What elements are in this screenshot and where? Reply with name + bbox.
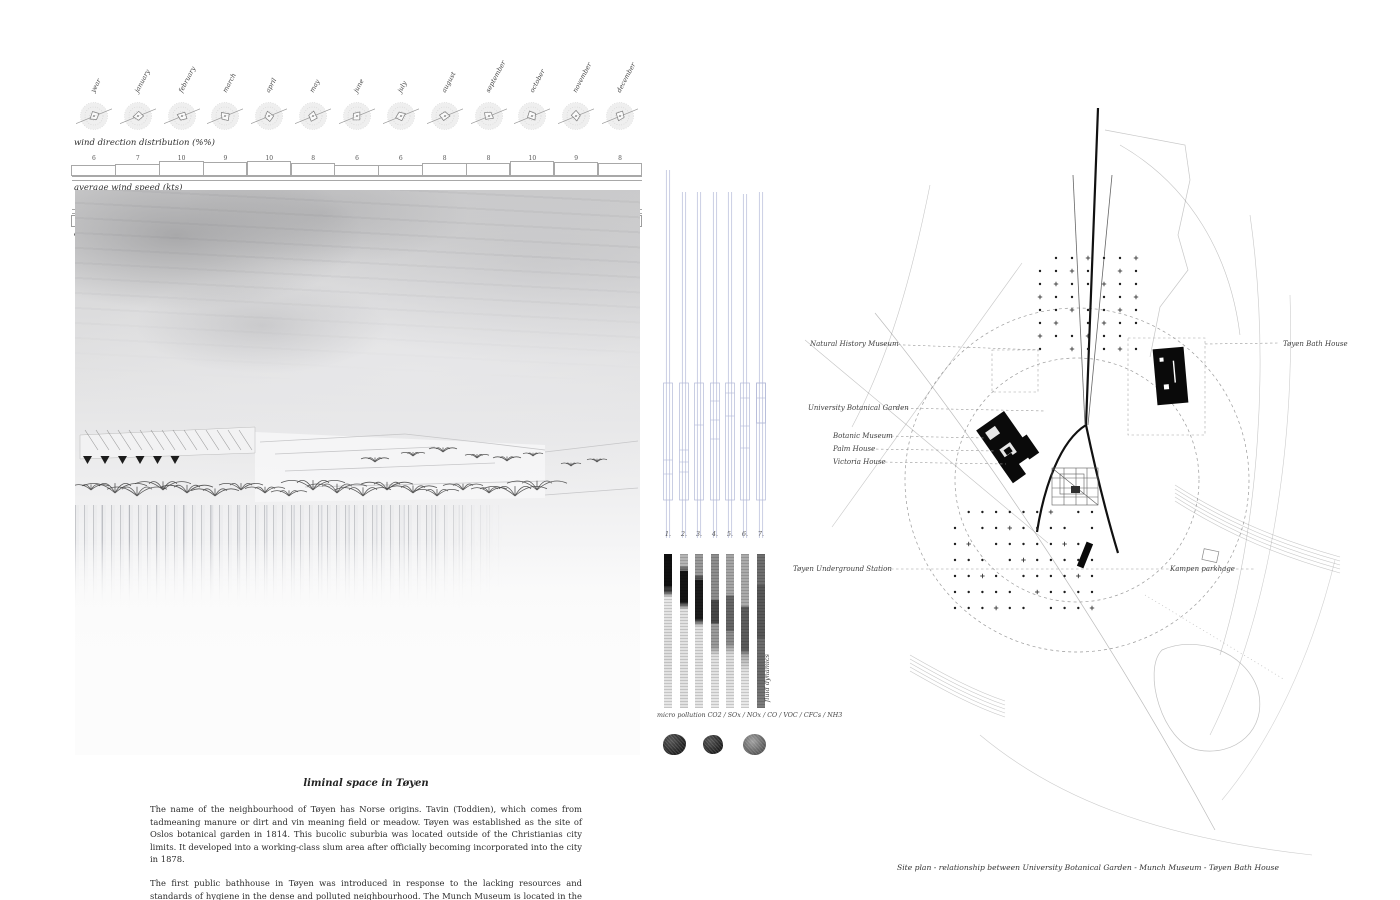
tree-dot — [1050, 575, 1052, 577]
tree-dot — [1119, 296, 1121, 298]
sample-number: 1. — [665, 530, 671, 538]
month-label: november — [571, 61, 594, 94]
tree-dot — [1009, 511, 1011, 513]
contour-line — [1154, 644, 1260, 751]
tree-dot — [954, 607, 956, 609]
tree-dot — [1071, 296, 1073, 298]
month-label: year — [89, 77, 103, 94]
tree-dot — [954, 543, 956, 545]
tree-dot — [1103, 335, 1105, 337]
label-kampen-parkhage: Kampen parkhage — [1169, 565, 1235, 573]
wind-rose-icon — [76, 98, 112, 134]
rail-track — [1175, 485, 1340, 557]
rose-center — [137, 115, 139, 117]
tree-dot — [1071, 283, 1073, 285]
rose-center — [400, 115, 402, 117]
tree-dot — [1063, 591, 1065, 593]
contour-line — [1210, 295, 1291, 735]
fluid-dynamics-label: fluid dynamics — [763, 626, 771, 702]
tree-dot — [1039, 283, 1041, 285]
tree-dot — [1119, 322, 1121, 324]
tree-dot — [995, 591, 997, 593]
pollution-rock-3 — [743, 734, 766, 755]
wind-speed-value: 8 — [423, 155, 467, 163]
munch-museum-building — [1153, 347, 1189, 405]
roof-vent-triangle — [101, 456, 110, 464]
tree-dot — [995, 527, 997, 529]
month-label: may — [308, 78, 322, 94]
tree-dot — [981, 607, 983, 609]
contour-line — [1220, 215, 1260, 655]
wind-rose-cell — [379, 98, 423, 134]
wind-rose-icon — [514, 98, 550, 134]
tree-dot — [1039, 309, 1041, 311]
tree-dot — [995, 511, 997, 513]
wind-rose-icon — [164, 98, 200, 134]
rail-track — [910, 671, 1005, 717]
wind-speed-bar — [510, 161, 554, 176]
month-label: december — [615, 61, 637, 94]
tube-vessel — [757, 383, 766, 500]
sample-number: 7. — [758, 530, 764, 538]
month-cell: may — [291, 42, 335, 96]
tree-dot — [1077, 591, 1079, 593]
tree-dot — [981, 527, 983, 529]
tree-dot — [1119, 257, 1121, 259]
wind-rose-icon — [558, 98, 594, 134]
tree-dot — [1077, 543, 1079, 545]
palm-frond — [215, 489, 239, 496]
tree-dot — [1036, 559, 1038, 561]
tree-dot — [1119, 335, 1121, 337]
pollution-samples-panel: 1.2.3.4.5.6.7. fluid dynamics micro poll… — [655, 158, 795, 762]
dashed-site-box — [992, 350, 1038, 392]
rose-center — [575, 115, 577, 117]
contour-line — [1120, 145, 1240, 335]
tree-dot — [954, 591, 956, 593]
wind-speed-value: 8 — [291, 155, 335, 163]
wind-speed-bar — [71, 165, 115, 176]
tree-grid-upper — [1038, 256, 1138, 351]
contour-line — [832, 263, 1022, 527]
value-cell: 8 — [467, 155, 511, 163]
month-cell: july — [379, 42, 423, 96]
tree-dot — [968, 559, 970, 561]
ticked-rail-line — [1145, 595, 1285, 680]
greenhouse-render-image — [75, 190, 640, 755]
sample-number: 3. — [696, 530, 702, 538]
parking-square — [1202, 549, 1219, 563]
roof-block — [80, 427, 255, 459]
tree-dot — [1036, 511, 1038, 513]
month-cell: march — [204, 42, 248, 96]
tree-dot — [1036, 575, 1038, 577]
wind-rose-cell — [554, 98, 598, 134]
tree-dot — [1103, 309, 1105, 311]
rose-center — [356, 115, 358, 117]
value-cell: 8 — [291, 155, 335, 163]
tree-dot — [1135, 283, 1137, 285]
tree-dot — [968, 607, 970, 609]
roof-vent-triangle — [171, 456, 180, 464]
tree-dot — [1036, 527, 1038, 529]
label-university-botanical-garden: University Botanical Garden — [808, 404, 909, 412]
tree-dot — [1009, 559, 1011, 561]
tube-vessel — [726, 383, 735, 500]
wind-rose-icon — [120, 98, 156, 134]
wind-speed-bar — [247, 161, 291, 176]
tree-dot — [968, 511, 970, 513]
wind-rose-cell — [247, 98, 291, 134]
tree-dot — [1135, 348, 1137, 350]
month-cell: december — [598, 42, 642, 96]
tree-dot — [1063, 527, 1065, 529]
month-cell: january — [116, 42, 160, 96]
tree-dot — [1022, 527, 1024, 529]
month-label: february — [177, 65, 197, 94]
tree-dot — [1050, 591, 1052, 593]
tree-dot — [954, 575, 956, 577]
label-natural-history-museum: Natural History Museum — [809, 340, 899, 348]
month-label: january — [133, 68, 152, 94]
wind-speed-value: 8 — [598, 155, 642, 163]
label-toyen-underground-station: Tøyen Underground Station — [793, 565, 892, 573]
rose-center — [312, 115, 314, 117]
rail-track — [910, 663, 1005, 709]
tree-dot — [1119, 283, 1121, 285]
road-branch-left — [1037, 425, 1086, 532]
tree-dot — [1135, 322, 1137, 324]
tree-dot — [1071, 335, 1073, 337]
wind-rose-cell — [423, 98, 467, 134]
tree-dot — [1050, 543, 1052, 545]
wind-rose-cell — [467, 98, 511, 134]
presentation-board: yearjanuaryfebruarymarchaprilmayjunejuly… — [0, 0, 1400, 900]
tree-dot — [1009, 607, 1011, 609]
tree-dot — [1063, 559, 1065, 561]
wind-speed-bar — [115, 164, 159, 176]
wind-speed-bar — [159, 161, 203, 176]
wind-speed-value: 7 — [116, 155, 160, 163]
tree-dot — [1135, 270, 1137, 272]
tree-dot — [1036, 543, 1038, 545]
rose-center — [225, 115, 227, 117]
tree-dot — [1087, 309, 1089, 311]
tree-dot — [981, 511, 983, 513]
tree-dot — [1039, 322, 1041, 324]
tree-dot — [1091, 527, 1093, 529]
tree-dot — [954, 559, 956, 561]
essay-block: liminal space in Tøyen The name of the n… — [150, 778, 582, 900]
month-cell: september — [467, 42, 511, 96]
wind-rose-icon — [251, 98, 287, 134]
month-label: september — [484, 59, 508, 94]
wind-rose-cell — [598, 98, 642, 134]
tree-dot — [1091, 511, 1093, 513]
tree-grid-lower — [954, 510, 1094, 610]
palm-plant — [587, 459, 607, 462]
tree-dot — [1103, 257, 1105, 259]
tree-dot — [1009, 543, 1011, 545]
tree-dot — [1071, 257, 1073, 259]
tree-dot — [1055, 270, 1057, 272]
tree-dot — [1009, 591, 1011, 593]
wind-rose-cell — [204, 98, 248, 134]
month-label: august — [440, 71, 458, 94]
sample-strip — [726, 554, 735, 708]
sample-number: 4. — [712, 530, 718, 538]
tree-dot — [1055, 257, 1057, 259]
tree-dot — [954, 527, 956, 529]
wind-rose-cell — [291, 98, 335, 134]
wind-speed-bar — [334, 165, 378, 176]
wind-speed-bar — [291, 163, 335, 176]
tree-dot — [1055, 335, 1057, 337]
tree-dot — [995, 575, 997, 577]
tree-dot — [1091, 559, 1093, 561]
month-cell: august — [423, 42, 467, 96]
wind-speed-bar — [422, 163, 466, 176]
wind-rose-icon — [427, 98, 463, 134]
wind-speed-bar — [554, 162, 598, 176]
value-cell: 7 — [116, 155, 160, 163]
wind-rose-cell — [116, 98, 160, 134]
tree-dot — [1087, 270, 1089, 272]
tree-dot — [1091, 591, 1093, 593]
tree-dot — [1022, 511, 1024, 513]
month-cell: november — [554, 42, 598, 96]
palm-frond — [191, 489, 215, 496]
sample-strip — [711, 554, 720, 708]
tree-dot — [1055, 309, 1057, 311]
wind-speed-bars — [72, 163, 642, 176]
tube-vessel — [711, 383, 720, 500]
label-victoria-house: Victoria House — [833, 458, 886, 466]
contour-line — [980, 735, 1312, 855]
terrace-edge — [545, 441, 638, 452]
sample-strip — [664, 554, 673, 708]
tree-dot — [1022, 575, 1024, 577]
tube-vessel — [664, 383, 673, 500]
main-road — [1086, 108, 1098, 425]
wind-rose-icon — [207, 98, 243, 134]
wind-speed-bar — [598, 163, 642, 176]
tree-dot — [1050, 607, 1052, 609]
value-cell: 8 — [423, 155, 467, 163]
tree-dot — [1077, 559, 1079, 561]
tree-dot — [1077, 511, 1079, 513]
wind-speed-bar — [466, 163, 510, 176]
wind-rose-icon — [383, 98, 419, 134]
tree-dot — [968, 575, 970, 577]
label-toyen-bath-house: Tøyen Bath House — [1283, 340, 1348, 348]
wind-speed-value: 8 — [467, 155, 511, 163]
month-cell: june — [335, 42, 379, 96]
wind-roses-row — [72, 96, 642, 136]
tree-dot — [995, 543, 997, 545]
tree-dot — [1039, 270, 1041, 272]
tree-dot — [1087, 348, 1089, 350]
tree-dot — [981, 559, 983, 561]
label-palm-house: Palm House — [832, 445, 875, 453]
roof-vent-triangle — [136, 456, 145, 464]
sample-strip — [741, 554, 750, 708]
sample-number: 2. — [681, 530, 687, 538]
month-label: july — [396, 80, 409, 94]
wind-rose-cell — [160, 98, 204, 134]
rose-center — [444, 115, 446, 117]
tube-vessel — [741, 383, 750, 500]
wind-speed-bar — [203, 162, 247, 176]
tree-dot — [1087, 283, 1089, 285]
wind-direction-label: wind direction distribution (%%) — [74, 138, 642, 148]
rail-track — [910, 655, 1005, 701]
sample-number: 6. — [742, 530, 748, 538]
tree-dot — [1063, 607, 1065, 609]
tree-dot — [1087, 322, 1089, 324]
month-label: october — [527, 68, 546, 94]
month-label: june — [352, 78, 366, 94]
value-cell: 6 — [335, 155, 379, 163]
month-cell: october — [510, 42, 554, 96]
tree-dot — [1103, 348, 1105, 350]
munch-site-plan-grid — [1052, 468, 1098, 505]
wind-rose-icon — [295, 98, 331, 134]
month-label: april — [264, 77, 278, 94]
site-plan-map: Natural History Museum Tøyen Bath House … — [790, 95, 1400, 890]
tree-dot — [968, 591, 970, 593]
rose-center — [488, 115, 490, 117]
wind-speed-baseline — [72, 176, 642, 181]
tree-dot — [1050, 527, 1052, 529]
value-cell: 6 — [72, 155, 116, 163]
sample-number: 5. — [727, 530, 733, 538]
palm-plant — [191, 489, 239, 496]
essay-title: liminal space in Tøyen — [150, 778, 582, 789]
rose-center — [93, 115, 95, 117]
month-cell: april — [247, 42, 291, 96]
palm-plant — [135, 482, 191, 490]
wind-rose-icon — [602, 98, 638, 134]
tree-dot — [1135, 309, 1137, 311]
essay-paragraph-1: The name of the neighbourhood of Tøyen h… — [150, 803, 582, 866]
wind-rose-icon — [471, 98, 507, 134]
month-label: march — [221, 72, 238, 94]
tree-dot — [981, 591, 983, 593]
palm-plant — [561, 463, 581, 466]
month-cell: year — [72, 42, 116, 96]
contour-line — [1222, 560, 1335, 800]
path-edge-left — [1073, 175, 1085, 425]
essay-paragraph-2: The first public bathhouse in Tøyen was … — [150, 877, 582, 900]
tree-dot — [1103, 296, 1105, 298]
roof-vent-triangle — [83, 456, 92, 464]
wind-rose-icon — [339, 98, 375, 134]
wind-speed-bar — [378, 165, 422, 176]
fog-overlay — [75, 542, 640, 755]
sample-strip — [680, 554, 689, 708]
tree-dot — [1091, 575, 1093, 577]
contour-line — [852, 185, 930, 427]
sample-strip — [695, 554, 704, 708]
value-cell: 8 — [598, 155, 642, 163]
tree-dot — [1022, 607, 1024, 609]
road-branch-right — [1086, 425, 1118, 553]
rail-track — [910, 659, 1005, 705]
tree-dot — [1077, 607, 1079, 609]
outer-radius-circle — [905, 308, 1249, 652]
month-labels-row: yearjanuaryfebruarymarchaprilmayjunejuly… — [72, 42, 642, 96]
pollution-rock-2 — [703, 735, 723, 754]
tree-dot — [1055, 296, 1057, 298]
rose-center — [619, 115, 621, 117]
terrace-edge — [545, 488, 638, 495]
tube-vessel — [680, 383, 689, 500]
roof-vent-triangle — [118, 456, 127, 464]
tree-dot — [1063, 575, 1065, 577]
wind-speed-value: 6 — [335, 155, 379, 163]
label-leader-lines — [871, 343, 1278, 569]
wind-rose-cell — [335, 98, 379, 134]
rose-center — [531, 115, 533, 117]
month-cell: february — [160, 42, 204, 96]
roof-vent-triangle — [153, 456, 162, 464]
station-building — [1077, 542, 1093, 569]
wind-rose-cell — [510, 98, 554, 134]
tree-dot — [1022, 543, 1024, 545]
value-cell: 6 — [379, 155, 423, 163]
rose-center — [268, 115, 270, 117]
rail-track — [910, 667, 1005, 713]
tube-vessel-top — [757, 383, 766, 423]
rose-center — [181, 115, 183, 117]
tube-vessel — [695, 383, 704, 500]
wind-speed-value: 6 — [72, 155, 116, 163]
wind-rose-cell — [72, 98, 116, 134]
label-botanic-museum: Botanic Museum — [832, 432, 893, 440]
site-plan-caption: Site plan - relationship between Univers… — [897, 863, 1279, 872]
wind-speed-value: 6 — [379, 155, 423, 163]
tree-dot — [1050, 559, 1052, 561]
